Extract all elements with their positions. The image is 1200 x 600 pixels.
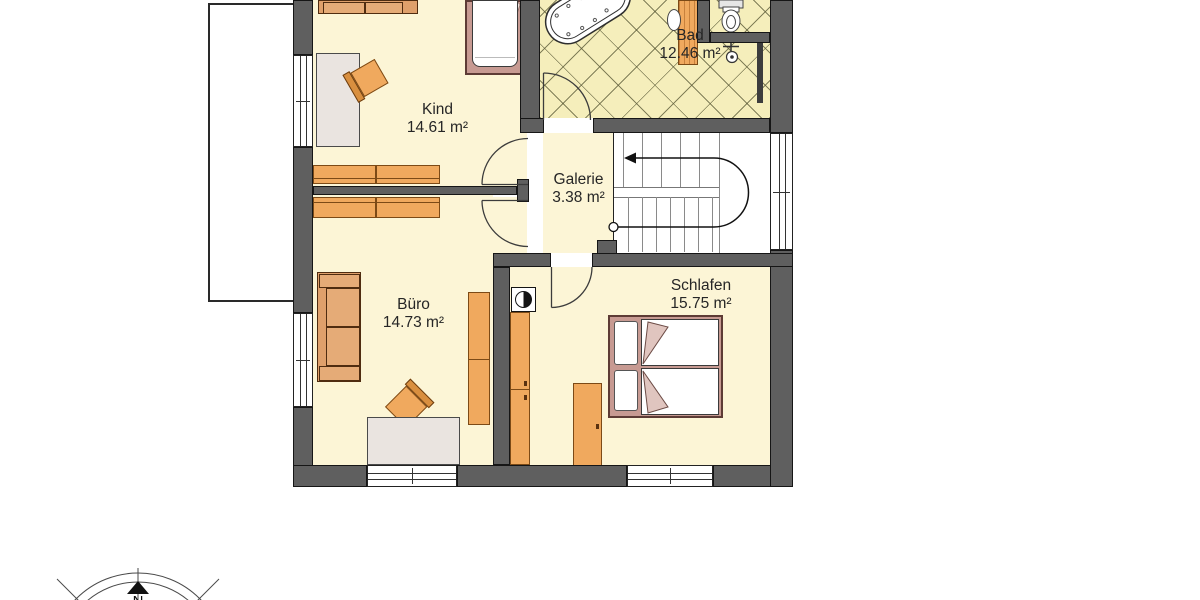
room-label-galerie: Galerie 3.38 m² [531,171,626,206]
room-label-schlafen: Schlafen 15.75 m² [646,277,756,312]
door-swings [0,0,800,500]
room-name: Büro [361,296,466,314]
room-area: 14.61 m² [380,119,495,137]
room-area: 15.75 m² [646,295,756,313]
room-label-kind: Kind 14.61 m² [380,101,495,136]
room-label-buero: Büro 14.73 m² [361,296,466,331]
room-name: Bad [640,27,740,45]
room-name: Galerie [531,171,626,189]
compass-north-label: N [133,593,144,600]
room-label-bad: Bad 12.46 m² [640,27,740,62]
room-name: Kind [380,101,495,119]
floor-plan: Kind 14.61 m² Bad 12.46 m² Galerie 3.38 … [0,0,1200,600]
compass-rose: N [20,555,256,600]
room-area: 14.73 m² [361,314,466,332]
room-area: 12.46 m² [640,45,740,63]
room-area: 3.38 m² [531,189,626,207]
room-name: Schlafen [646,277,756,295]
